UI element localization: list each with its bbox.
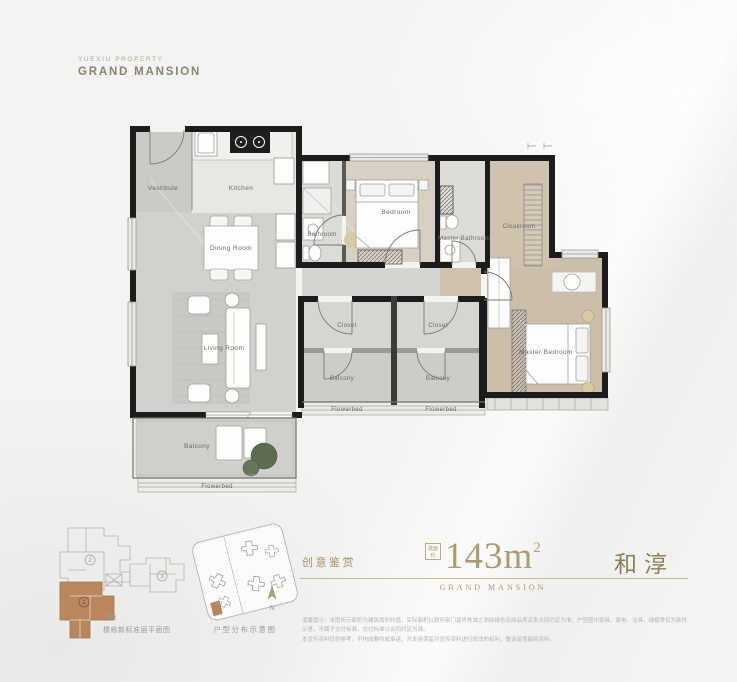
creative-label: 创意鉴赏	[302, 554, 356, 570]
cooktop-icon	[230, 131, 270, 153]
area-value: 143m2	[445, 535, 541, 578]
disclaimer-line1: 温馨提示：本图所示面积为建筑面积约值，实际面积以政府部门最终核准之测绘报告及商品…	[302, 617, 690, 636]
area-tag-line1: 建面	[426, 546, 440, 553]
room-label-balcony-right: Balcony	[426, 376, 450, 382]
keyplan-building-label: 3栋	[106, 612, 117, 621]
area-tag-line2: 约	[426, 553, 440, 560]
room-label-flowerbed-right: Flowerbed	[425, 407, 457, 413]
area-tag-seal: 建面 约	[425, 543, 441, 560]
room-label-flowerbed-left: Flowerbed	[331, 407, 363, 413]
room-label-closet-right: Closet	[428, 323, 447, 329]
keyplan-core	[106, 574, 122, 586]
disclaimer-line2: 本宣传资料仅供参考，不构成要约或承诺，开发商保留对宣传资料进行修改的权利，敬请留…	[302, 636, 690, 645]
room-label-bedroom: Bedroom	[381, 209, 410, 216]
disclaimer: 温馨提示：本图所示面积为建筑面积约值，实际面积以政府部门最终核准之测绘报告及商品…	[302, 617, 690, 645]
unit-info-block: 创意鉴赏 建面 约 143m2 和淳 GRAND MANSION 温馨提示：本图…	[298, 530, 690, 660]
room-label-flowerbed-main: Flowerbed	[201, 484, 233, 490]
keyplan-caption: 楼栋新标准层平面图	[103, 625, 171, 634]
keyplan: 2 1 3 3栋 楼栋新标准层平面图	[46, 522, 196, 647]
brand-name: GRAND MANSION	[78, 66, 201, 78]
siteplan-caption: 户型分布示意图	[214, 624, 277, 634]
room-label-balcony-left: Balcony	[330, 376, 354, 382]
room-label-vestibule: Vestibule	[148, 185, 178, 192]
brand-company: YUEXIU PROPERTY	[78, 56, 201, 63]
room-label-kitchen: Kitchen	[229, 185, 253, 192]
siteplan-parcel	[191, 522, 300, 622]
area-superscript: 2	[533, 540, 541, 556]
brand-logo: YUEXIU PROPERTY GRAND MANSION	[78, 56, 201, 78]
page-background: YUEXIU PROPERTY GRAND MANSION	[0, 0, 737, 682]
room-label-closet-left: Closet	[337, 323, 356, 329]
area-number: 143m	[445, 536, 533, 577]
siteplan: N 户型分布示意图	[188, 520, 308, 645]
room-label-bathroom: Bathroom	[307, 232, 336, 238]
floorplan: Vestibule Kitchen Dining Room Living Roo…	[120, 108, 625, 508]
divider-line	[300, 578, 688, 579]
svg-text:3: 3	[160, 574, 164, 580]
room-label-master-bedroom: Master Bedroom	[519, 349, 573, 356]
svg-text:2: 2	[88, 558, 92, 564]
room-label-cloakroom: Cloakroom	[503, 224, 536, 230]
room-label-balcony-main: Balcony	[184, 443, 210, 450]
brand-en-caption: GRAND MANSION	[358, 583, 628, 592]
svg-text:N: N	[269, 605, 274, 612]
room-label-master-bathroom: Master Bathroom	[438, 236, 490, 242]
room-label-living: Living Room	[204, 345, 245, 352]
room-label-dining: Dining Room	[210, 245, 252, 252]
unit-name: 和淳	[614, 545, 674, 579]
